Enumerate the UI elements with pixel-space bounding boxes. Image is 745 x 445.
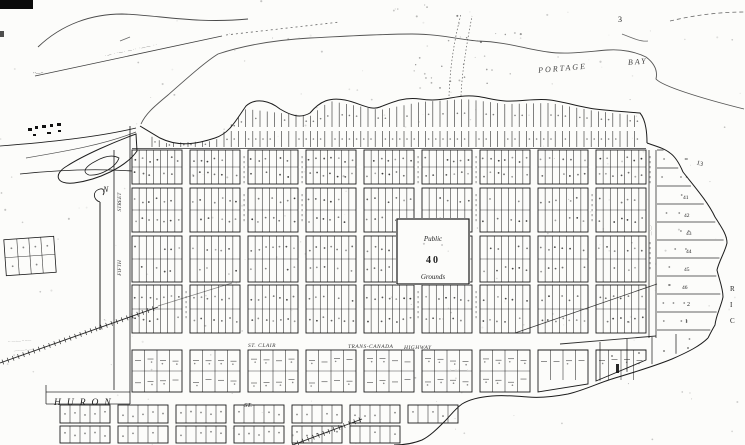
waterfront-edge xyxy=(140,96,647,144)
label-number-13: 13 xyxy=(696,159,704,168)
north-arrow xyxy=(94,189,104,330)
east-shore-blocks xyxy=(649,150,724,340)
survey-line-dashed xyxy=(226,22,340,35)
block-number-2: 2 xyxy=(687,302,690,308)
label-st-clair: ST. CLAIR xyxy=(248,343,276,349)
block-number-41: 41 xyxy=(683,195,689,201)
shore-road-3 xyxy=(20,170,132,174)
label-highway: HIGHWAY xyxy=(403,345,432,351)
east-shore-edge xyxy=(647,143,727,338)
illegible-south-note: ·—·· · ——· xyxy=(450,368,468,372)
label-grounds: Grounds xyxy=(421,273,446,281)
shore-letter-r: R xyxy=(730,285,735,293)
lagoon xyxy=(58,134,137,183)
label-huron-st-abbrev: ST. xyxy=(244,402,252,409)
scan-artifacts xyxy=(0,0,33,37)
city-block xyxy=(176,405,226,423)
west-isolated-block xyxy=(4,236,56,275)
west-area xyxy=(0,123,137,330)
illegible-rail-note-1: ·· —·— ····— xyxy=(8,337,33,344)
scan-edge-bar xyxy=(0,0,33,9)
label-fifth-street-word: STREET xyxy=(117,192,123,212)
illegible-west-note: ··—·· xyxy=(33,70,44,75)
south-boundary xyxy=(394,338,708,445)
block-number-45: 45 xyxy=(684,267,690,273)
block-number-44: 44 xyxy=(686,249,692,255)
block-band xyxy=(132,188,646,232)
bottom-band xyxy=(60,405,458,443)
waterfront-buildings xyxy=(28,123,61,136)
label-portage: PORTAGE xyxy=(537,62,588,75)
survey-line xyxy=(35,36,222,76)
block-number-1: 1 xyxy=(685,319,688,325)
label-north: N xyxy=(102,185,109,194)
town-blocks xyxy=(4,99,724,443)
southeast-blocks xyxy=(560,334,689,381)
label-public-40: 40 xyxy=(426,255,440,266)
label-number-3: 3 xyxy=(618,15,622,24)
city-block xyxy=(118,426,168,443)
shorelines xyxy=(35,12,744,124)
label-huron-street: HURON xyxy=(53,398,117,408)
city-block xyxy=(176,426,226,443)
label-public: Public xyxy=(423,235,443,243)
shore-road-1 xyxy=(0,128,136,146)
creek-line xyxy=(449,14,461,96)
illegible-east-street-note: —·—· xyxy=(648,225,653,237)
top-right-dashed-shore xyxy=(670,12,744,21)
south-band xyxy=(132,350,646,392)
shore-road-2 xyxy=(26,132,136,158)
block-number-42: 42 xyxy=(684,213,690,219)
label-bay: BAY xyxy=(628,56,648,67)
block-band xyxy=(132,150,651,184)
railway-and-details xyxy=(0,283,657,445)
scanned-plat-map: PORTAGE BAY HURON ST. ST. CLAIR TRANS-CA… xyxy=(0,0,745,445)
waterfront-partial-lots xyxy=(114,99,646,404)
shore-letter-i: I xyxy=(730,301,733,309)
scan-edge-smudge xyxy=(0,31,4,37)
city-block xyxy=(408,405,458,423)
block-number-43: 43 xyxy=(686,231,692,237)
block-band xyxy=(132,236,651,282)
city-block xyxy=(292,405,342,423)
far-shore-line xyxy=(38,14,248,47)
block-number-46: 46 xyxy=(682,285,688,291)
creek-line-2 xyxy=(461,16,472,96)
label-trans-canada: TRANS-CANADA xyxy=(348,344,394,350)
city-block xyxy=(350,426,400,443)
city-block xyxy=(60,426,110,443)
top-right-curve xyxy=(622,34,648,41)
bay-north-shore xyxy=(141,34,744,124)
label-fifth: FIFTH xyxy=(117,259,123,277)
map-mark xyxy=(616,364,619,373)
shore-dash xyxy=(120,37,130,41)
block-band xyxy=(132,285,646,333)
shore-letter-c: C xyxy=(730,317,735,325)
map-canvas: PORTAGE BAY HURON ST. ST. CLAIR TRANS-CA… xyxy=(0,0,745,445)
city-block xyxy=(234,405,284,423)
